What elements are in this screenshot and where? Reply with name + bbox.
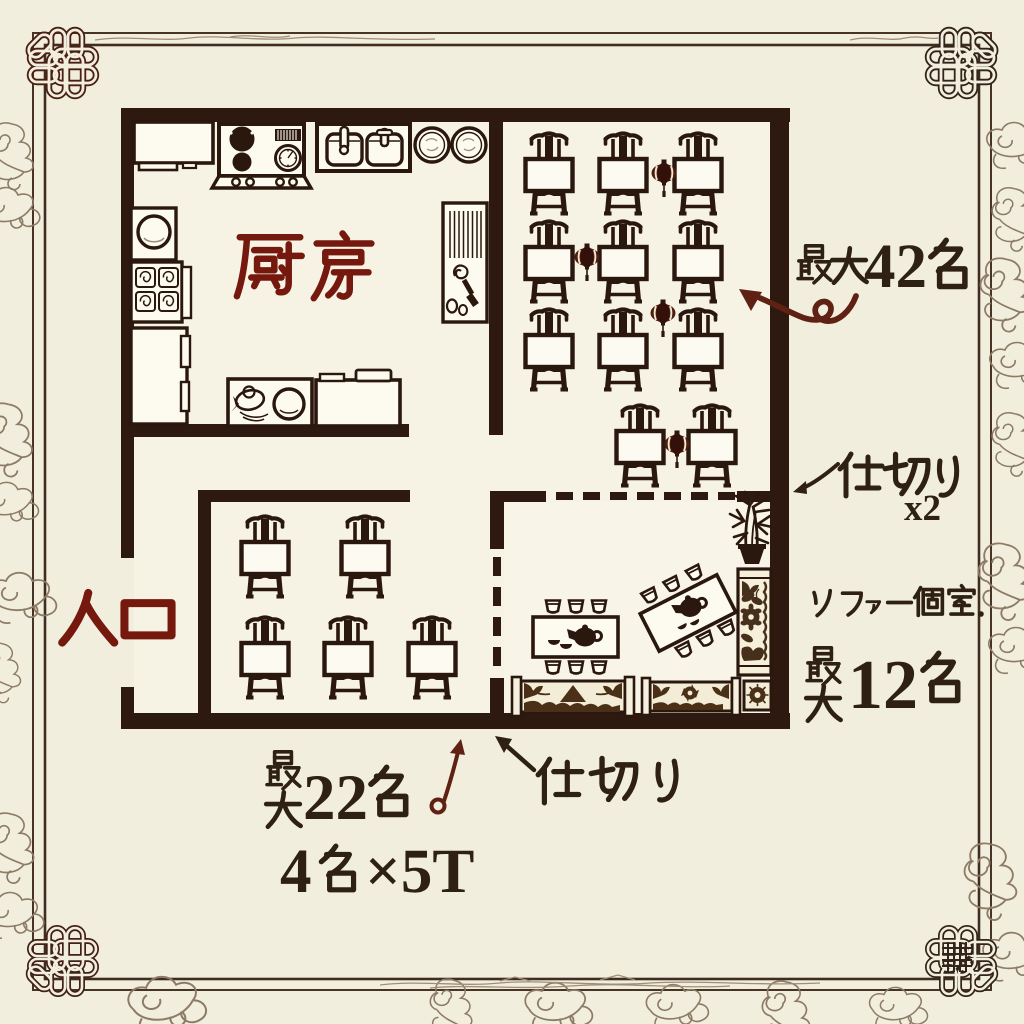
svg-text:12: 12 <box>848 647 918 724</box>
svg-text:x2: x2 <box>904 488 941 529</box>
svg-text:22: 22 <box>303 762 368 834</box>
svg-text:42: 42 <box>864 231 927 301</box>
svg-text:4: 4 <box>280 836 312 906</box>
svg-text:×5T: ×5T <box>365 836 474 906</box>
